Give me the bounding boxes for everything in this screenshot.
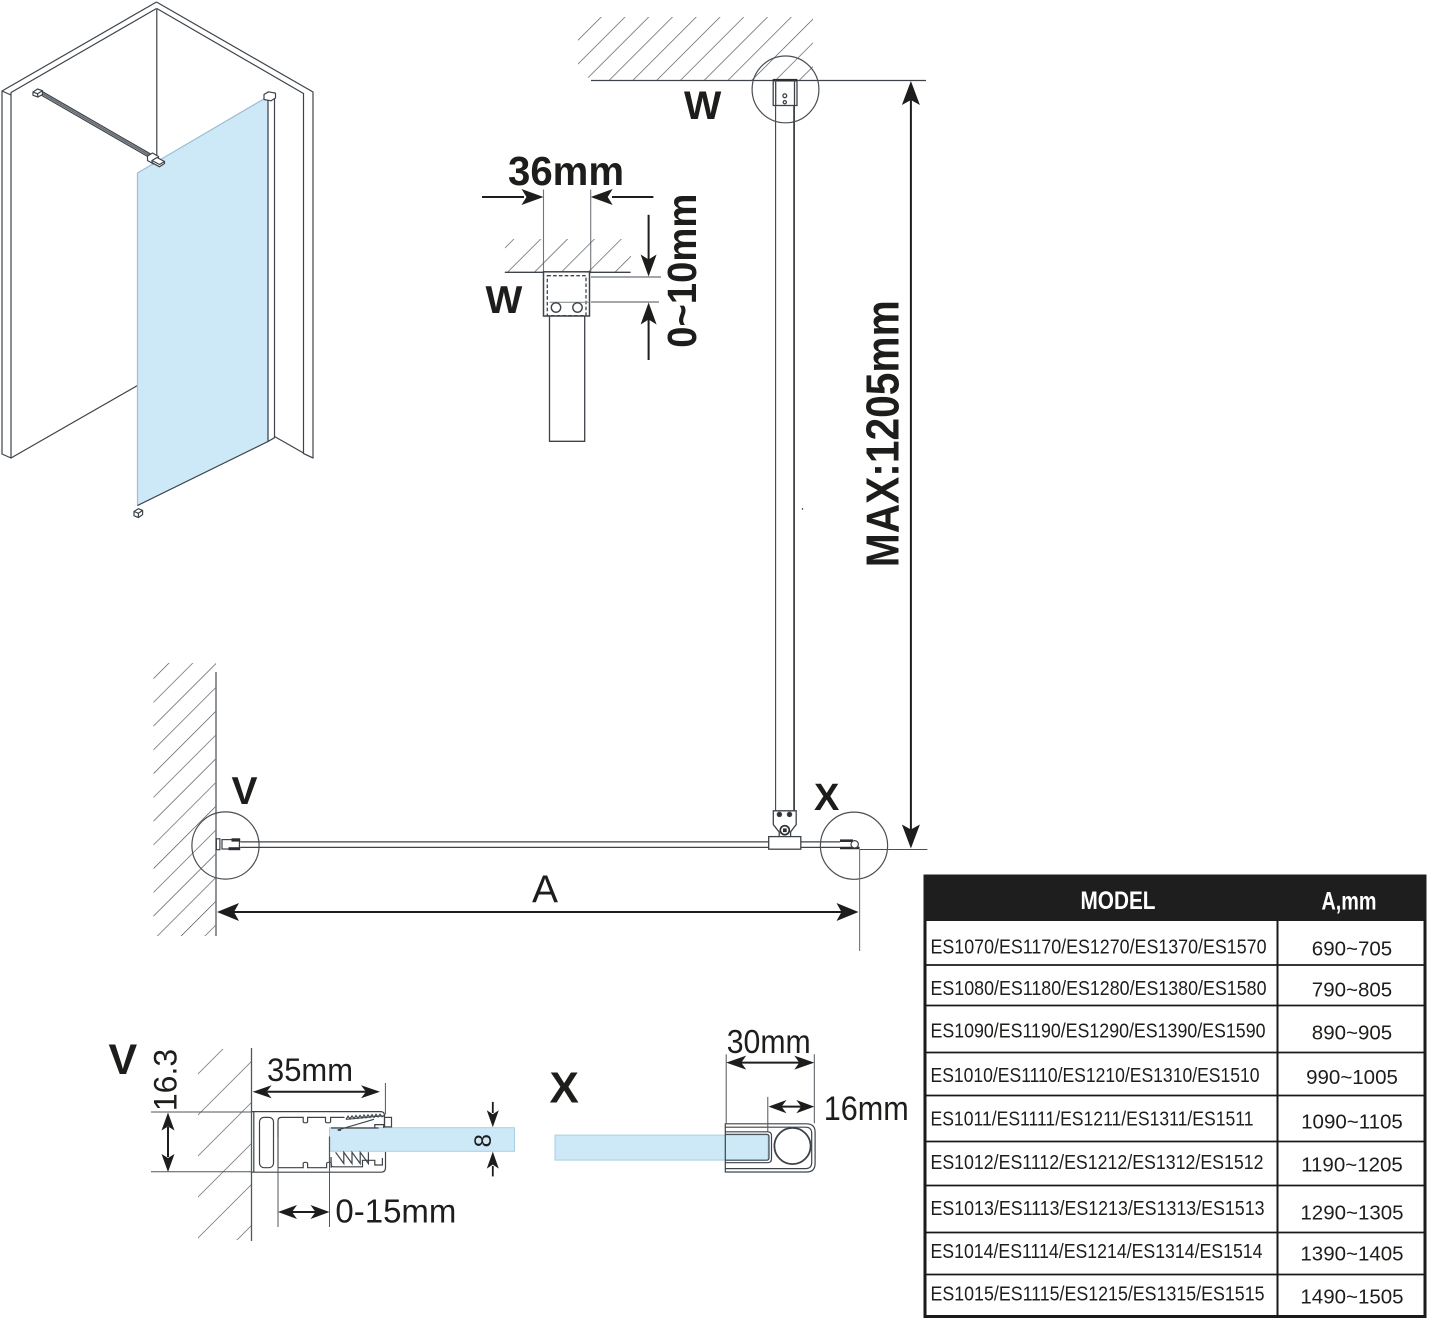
svg-text:1190~1205: 1190~1205	[1301, 1153, 1403, 1176]
svg-text:35mm: 35mm	[267, 1052, 353, 1088]
svg-text:1290~1305: 1290~1305	[1300, 1202, 1403, 1225]
svg-text:ES1011/ES1111/ES1211/ES1311/ES: ES1011/ES1111/ES1211/ES1311/ES1511	[931, 1108, 1254, 1131]
svg-text:V: V	[232, 770, 258, 813]
svg-text:16.3: 16.3	[148, 1049, 184, 1111]
svg-text:1390~1405: 1390~1405	[1300, 1243, 1403, 1266]
svg-text:ES1014/ES1114/ES1214/ES1314/ES: ES1014/ES1114/ES1214/ES1314/ES1514	[931, 1240, 1263, 1263]
svg-text:MAX:1205mm: MAX:1205mm	[857, 300, 909, 567]
svg-text:890~905: 890~905	[1312, 1021, 1392, 1044]
svg-text:X: X	[814, 777, 840, 819]
svg-text:ES1015/ES1115/ES1215/ES1315/ES: ES1015/ES1115/ES1215/ES1315/ES1515	[931, 1283, 1265, 1306]
svg-text:ES1012/ES1112/ES1212/ES1312/ES: ES1012/ES1112/ES1212/ES1312/ES1512	[931, 1151, 1264, 1174]
svg-text:16mm: 16mm	[824, 1090, 909, 1128]
svg-text:990~1005: 990~1005	[1306, 1066, 1398, 1089]
svg-text:W: W	[684, 84, 722, 128]
svg-text:790~805: 790~805	[1312, 979, 1392, 1002]
svg-text:1490~1505: 1490~1505	[1300, 1285, 1403, 1308]
svg-text:0-15mm: 0-15mm	[335, 1193, 456, 1230]
svg-text:A: A	[532, 869, 558, 912]
svg-text:ES1080/ES1180/ES1280/ES1380/ES: ES1080/ES1180/ES1280/ES1380/ES1580	[931, 977, 1267, 1000]
svg-text:ES1090/ES1190/ES1290/ES1390/ES: ES1090/ES1190/ES1290/ES1390/ES1590	[931, 1020, 1266, 1043]
svg-text:ES1013/ES1113/ES1213/ES1313/ES: ES1013/ES1113/ES1213/ES1313/ES1513	[931, 1197, 1265, 1220]
svg-text:690~705: 690~705	[1312, 938, 1392, 961]
svg-text:8: 8	[470, 1134, 497, 1147]
svg-text:ES1010/ES1110/ES1210/ES1310/ES: ES1010/ES1110/ES1210/ES1310/ES1510	[931, 1064, 1260, 1087]
svg-text:30mm: 30mm	[727, 1023, 811, 1060]
svg-text:0~10mm: 0~10mm	[659, 194, 705, 348]
svg-text:W: W	[486, 279, 523, 322]
svg-text:MODEL: MODEL	[1081, 887, 1156, 915]
svg-text:1090~1105: 1090~1105	[1301, 1111, 1403, 1134]
svg-text:A,mm: A,mm	[1322, 888, 1377, 916]
svg-text:36mm: 36mm	[508, 148, 624, 194]
svg-text:ES1070/ES1170/ES1270/ES1370/ES: ES1070/ES1170/ES1270/ES1370/ES1570	[931, 936, 1267, 959]
svg-text:X: X	[550, 1064, 579, 1113]
svg-text:V: V	[109, 1036, 138, 1084]
